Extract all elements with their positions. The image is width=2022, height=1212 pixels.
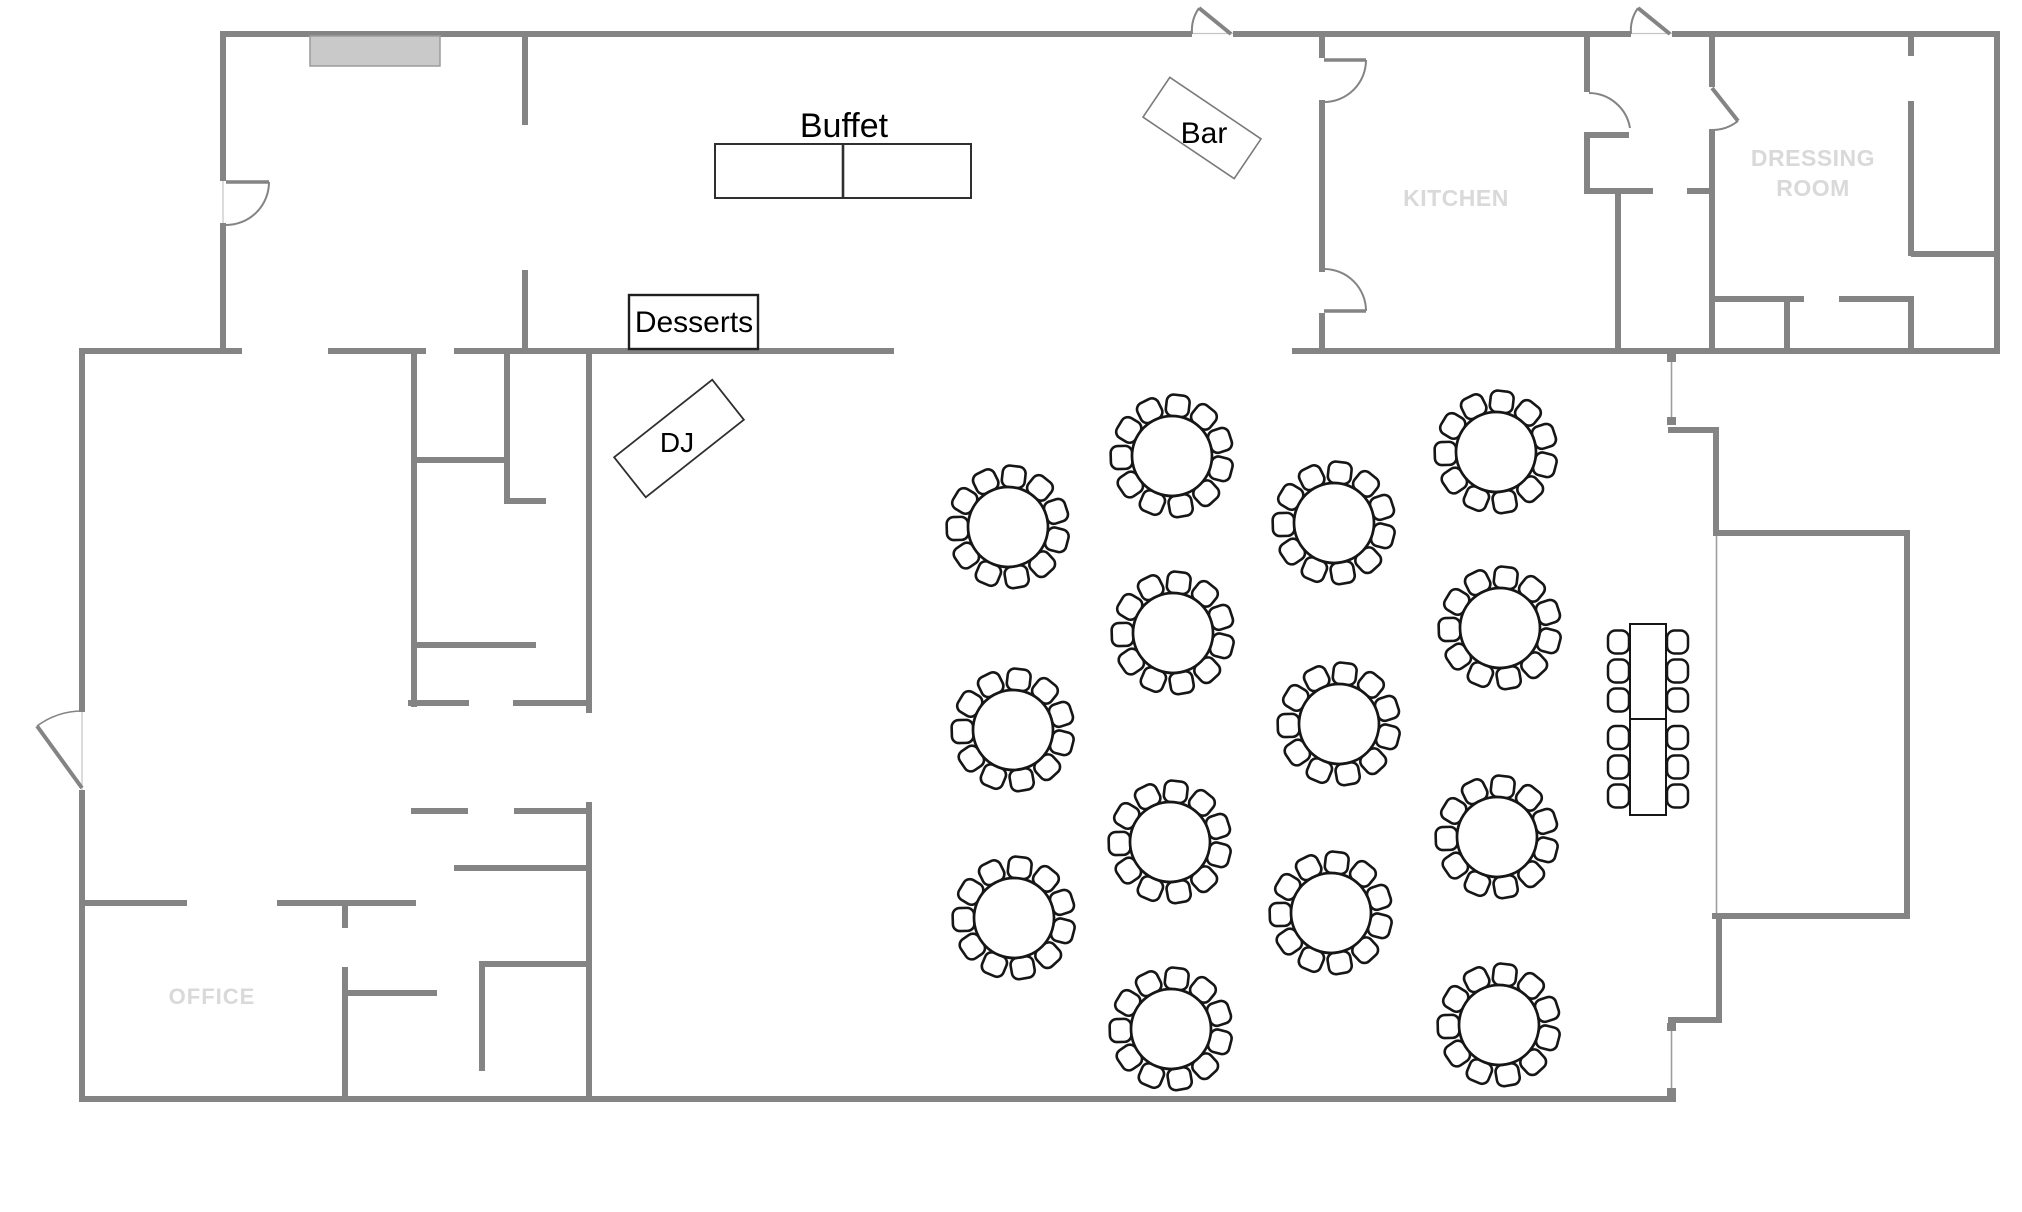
svg-text:DRESSING: DRESSING bbox=[1751, 145, 1875, 171]
svg-text:ROOM: ROOM bbox=[1776, 175, 1850, 201]
svg-text:KITCHEN: KITCHEN bbox=[1403, 185, 1509, 211]
svg-text:DJ: DJ bbox=[660, 427, 694, 458]
svg-text:Buffet: Buffet bbox=[800, 107, 889, 145]
svg-text:Bar: Bar bbox=[1181, 117, 1228, 150]
svg-text:OFFICE: OFFICE bbox=[169, 984, 256, 1009]
svg-text:Desserts: Desserts bbox=[635, 306, 753, 339]
